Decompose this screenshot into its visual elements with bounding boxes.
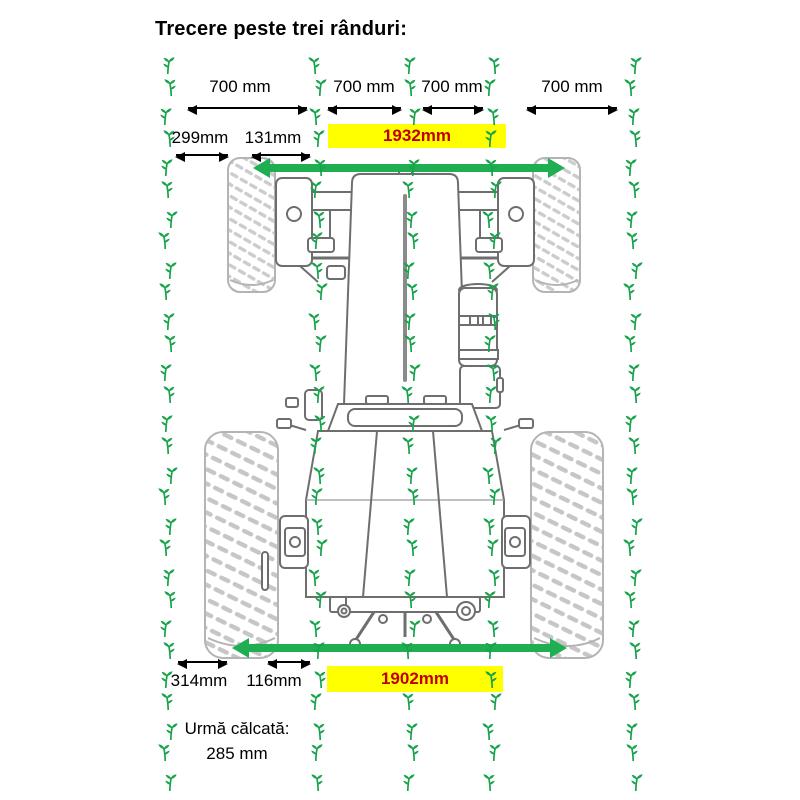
footnote: Urmă călcată: 285 mm [160, 716, 314, 766]
front-track-arrow-shaft [266, 164, 552, 172]
plant-icon [627, 312, 643, 330]
plant-icon [623, 334, 639, 352]
plant-icon [623, 590, 639, 608]
front-left-offset-arrow [176, 154, 228, 156]
plant-icon [628, 261, 644, 279]
plant-icon [310, 129, 326, 147]
plant-icon [481, 722, 497, 740]
plant-icon [623, 722, 639, 740]
plant-icon [628, 773, 644, 791]
plant-icon [158, 158, 174, 176]
plant-icon [625, 107, 641, 125]
plant-icon [627, 436, 643, 454]
plant-icon [487, 56, 503, 74]
plant-icon [160, 180, 176, 198]
plant-icon [623, 78, 639, 96]
rear-body-group [262, 431, 504, 597]
plant-icon [157, 231, 173, 249]
plant-icon [403, 78, 419, 96]
plant-icon [160, 568, 176, 586]
plant-icon [157, 487, 173, 505]
tractor-diagram [195, 148, 625, 670]
plant-icon [157, 619, 173, 637]
plant-icon [163, 334, 179, 352]
rear-right-wheel [531, 432, 603, 658]
rear-left-offset-arrow [178, 661, 227, 663]
rear-track-width-badge: 1902mm [327, 666, 503, 692]
plant-icon [625, 231, 641, 249]
plant-icon [628, 641, 644, 659]
plant-icon [308, 107, 324, 125]
plant-icon [486, 743, 502, 761]
plant-icon [486, 107, 502, 125]
row-spacing-arrow-2 [328, 107, 401, 109]
plant-icon [406, 743, 422, 761]
plant-icon [625, 743, 641, 761]
plant-icon [163, 78, 179, 96]
row-spacing-arrow-4 [527, 107, 617, 109]
plant-icon [400, 773, 416, 791]
plant-icon [623, 466, 639, 484]
plant-icon [406, 107, 422, 125]
plant-icon [307, 56, 323, 74]
plant-icon [625, 619, 641, 637]
rear-right-offset-arrow [268, 661, 310, 663]
plant-icon [160, 692, 176, 710]
plant-icon [625, 487, 641, 505]
plant-icon [625, 363, 641, 381]
rear-left-wheel [205, 432, 278, 658]
plant-icon [403, 722, 419, 740]
row-spacing-label-4: 700 mm [541, 77, 602, 97]
plant-icon [162, 385, 178, 403]
row-spacing-arrow-3 [423, 107, 483, 109]
rear-left-offset-label: 314mm [171, 671, 228, 691]
plant-icon [160, 312, 176, 330]
plant-icon [307, 692, 323, 710]
front-left-wheel [228, 158, 275, 292]
plant-icon [162, 641, 178, 659]
footnote-label: Urmă călcată: [160, 716, 314, 741]
plant-icon [162, 773, 178, 791]
footnote-value: 285 mm [160, 741, 314, 766]
front-right-offset-label: 131mm [245, 128, 302, 148]
front-left-offset-label: 299mm [172, 128, 229, 148]
plant-icon [163, 590, 179, 608]
plant-icon [482, 773, 498, 791]
plant-icon [312, 722, 328, 740]
row-spacing-label-3: 700 mm [421, 77, 482, 97]
row-spacing-arrow-1 [188, 107, 307, 109]
plant-icon [160, 56, 176, 74]
rear-right-offset-label: 116mm [246, 671, 301, 691]
rear-track-arrow-shaft [245, 644, 554, 652]
plant-icon [157, 107, 173, 125]
row-spacing-label-2: 700 mm [333, 77, 394, 97]
plant-icon [163, 466, 179, 484]
plant-icon [627, 56, 643, 74]
plant-icon [158, 538, 174, 556]
plant-icon [158, 282, 174, 300]
plant-icon [627, 180, 643, 198]
plant-icon [627, 568, 643, 586]
plant-icon [623, 210, 639, 228]
plant-icon [481, 78, 497, 96]
plant-icon [401, 692, 417, 710]
front-right-offset-arrow [252, 154, 310, 156]
plant-icon [622, 670, 638, 688]
diagram-canvas: Trecere peste trei rânduri: 700 mm 700 m… [0, 0, 800, 800]
page-title: Trecere peste trei rânduri: [155, 18, 407, 41]
plant-icon [487, 692, 503, 710]
plant-icon [158, 414, 174, 432]
cab-roof-group [328, 404, 482, 431]
plant-icon [628, 517, 644, 535]
plant-icon [628, 129, 644, 147]
plant-icon [310, 773, 326, 791]
rear-track-arrow [232, 638, 567, 658]
fuel-tank-group [459, 284, 503, 408]
plant-icon [163, 210, 179, 228]
plant-icon [162, 261, 178, 279]
plant-icon [628, 385, 644, 403]
front-track-arrow [253, 158, 565, 178]
front-right-wheel [533, 158, 580, 292]
row-spacing-label-1: 700 mm [209, 77, 270, 97]
plant-icon [157, 363, 173, 381]
plant-icon [627, 692, 643, 710]
plant-icon [162, 517, 178, 535]
plant-icon [160, 436, 176, 454]
front-track-width-badge: 1932mm [328, 124, 506, 148]
plant-icon [312, 78, 328, 96]
plant-icon [401, 56, 417, 74]
